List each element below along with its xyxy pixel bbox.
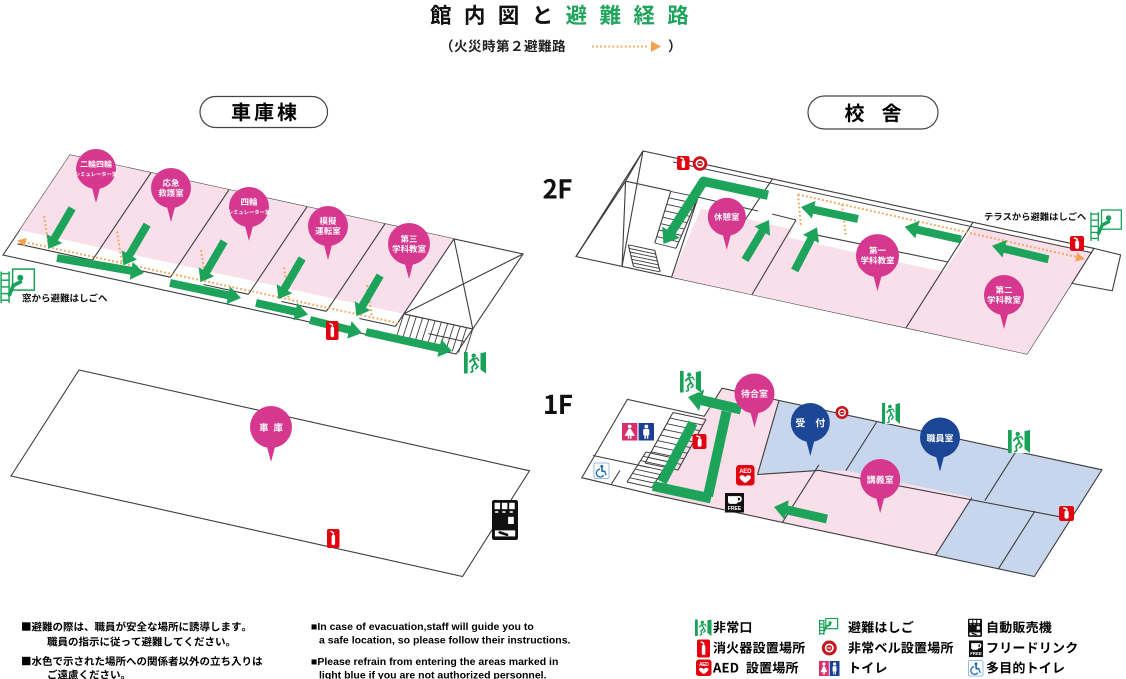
svg-text:light blue if you are not auth: light blue if you are not authorized per… (319, 670, 547, 679)
svg-text:■Please refrain from entering: ■Please refrain from entering the areas … (311, 656, 558, 668)
svg-text:FREE: FREE (970, 651, 982, 656)
svg-text:■In case of evacuation,staff w: ■In case of evacuation,staff will guide … (311, 621, 534, 633)
svg-text:AED: AED (699, 662, 709, 668)
svg-text:AED: AED (739, 468, 752, 475)
svg-text:a safe location, so please fol: a safe location, so please follow their … (319, 635, 571, 647)
svg-text:FREE: FREE (728, 506, 742, 512)
